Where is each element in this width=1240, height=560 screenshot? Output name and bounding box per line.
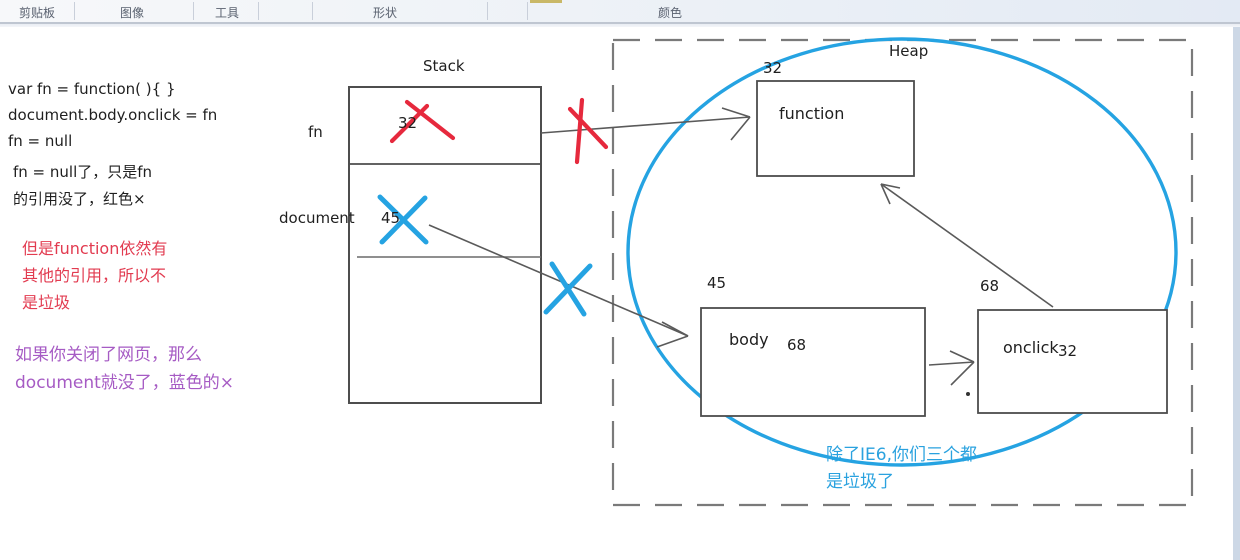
ribbon-group-clipboard: 剪贴板: [19, 4, 55, 21]
stack-slot-fn-value: 32: [398, 114, 417, 132]
purple-note-line-2: document就没了，蓝色的×: [15, 368, 234, 393]
stack-slot-document-label: document: [279, 209, 355, 227]
body-box: [701, 308, 925, 416]
code-line-1: var fn = function( ){ }: [8, 80, 176, 98]
code-line-5: 的引用没了，红色×: [13, 188, 146, 209]
ribbon-group-image: 图像: [120, 4, 144, 21]
ribbon-accent-mark: [530, 0, 562, 3]
stack-slot-fn-label: fn: [308, 123, 323, 141]
function-label: function: [779, 104, 844, 123]
arrow-onclick-to-function: [881, 184, 1053, 307]
ribbon-group-colors: 颜色: [658, 4, 682, 21]
code-line-2: document.body.onclick = fn: [8, 106, 217, 124]
ribbon-divider: [527, 2, 528, 20]
function-address: 32: [763, 59, 782, 77]
blue-x-arrow: [546, 264, 590, 314]
ribbon-divider: [312, 2, 313, 20]
purple-note-line-1: 如果你关闭了网页，那么: [15, 340, 202, 365]
ribbon-group-shapes: 形状: [373, 4, 397, 21]
canvas-right-edge: [1233, 27, 1240, 560]
ribbon-divider: [74, 2, 75, 20]
red-note-line-2: 其他的引用，所以不: [22, 262, 166, 286]
stack-title: Stack: [423, 57, 465, 75]
ribbon-divider: [487, 2, 488, 20]
arrow-document-to-body: [429, 225, 688, 347]
ribbon-divider: [193, 2, 194, 20]
red-note-line-3: 是垃圾: [22, 289, 70, 313]
blue-caption-line-2: 是垃圾了: [826, 467, 894, 492]
code-line-4: fn = null了，只是fn: [13, 161, 152, 182]
code-line-3: fn = null: [8, 132, 72, 150]
blue-caption-line-1: 除了IE6,你们三个都: [826, 440, 977, 465]
onclick-ref-value: 32: [1058, 342, 1077, 360]
body-address: 45: [707, 274, 726, 292]
onclick-address: 68: [980, 277, 999, 295]
body-label: body: [729, 330, 769, 349]
onclick-label: onclick: [1003, 338, 1059, 357]
arrow-body-to-onclick: [929, 351, 974, 385]
stack-slot-document-value: 45: [381, 209, 400, 227]
body-ref-value: 68: [787, 336, 806, 354]
red-note-line-1: 但是function依然有: [22, 235, 167, 259]
paint-canvas[interactable]: var fn = function( ){ } document.body.on…: [0, 27, 1233, 560]
heap-title: Heap: [889, 42, 928, 60]
ribbon-group-tools: 工具: [215, 4, 239, 21]
function-box: [757, 81, 914, 176]
ribbon-divider: [258, 2, 259, 20]
ink-dot: [966, 392, 970, 396]
ribbon-toolbar[interactable]: 剪贴板 图像 工具 形状 颜色: [0, 0, 1240, 22]
onclick-box: [978, 310, 1167, 413]
